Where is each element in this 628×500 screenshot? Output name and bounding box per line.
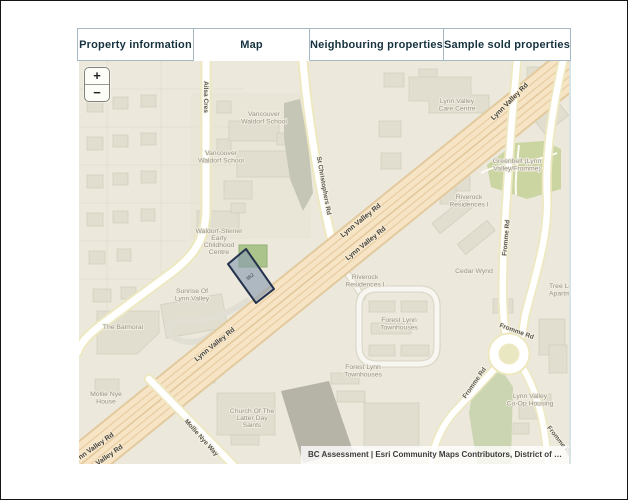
label-coop-housing: Lynn ValleyCo-Op Housing — [507, 393, 554, 408]
zoom-out-button[interactable]: − — [85, 84, 109, 101]
tab-neighbouring-properties[interactable]: Neighbouring properties — [310, 28, 444, 61]
tab-property-information[interactable]: Property information — [77, 28, 194, 61]
map-attribution: BC Assessment | Esri Community Maps Cont… — [301, 446, 569, 464]
tab-map[interactable]: Map — [194, 28, 310, 61]
map-canvas[interactable]: 362 Ailsa Cres VancouverWaldorf School V… — [79, 61, 571, 464]
label-care-centre: Lynn ValleyCare Centre — [438, 98, 475, 113]
tab-sample-sold-properties[interactable]: Sample sold properties — [444, 28, 571, 61]
zoom-in-button[interactable]: + — [85, 68, 109, 84]
label-forest-lynn-1: Forest LynnTownhouses — [380, 317, 418, 332]
label-sunrise: Sunrise OfLynn Valley — [175, 288, 210, 303]
label-ailsa-cres: Ailsa Cres — [202, 81, 209, 113]
label-forest-lynn-2: Forest LynnTownhouses — [344, 364, 382, 379]
assessment-page: Property information Map Neighbouring pr… — [0, 0, 628, 500]
label-tree-lodge: Tree LoApartme — [549, 283, 569, 298]
label-the-balmoral: The Balmoral — [103, 324, 144, 331]
tab-bar: Property information Map Neighbouring pr… — [77, 28, 571, 61]
zoom-control: + − — [84, 67, 110, 102]
label-cedar-wynd: Cedar Wynd — [455, 268, 493, 275]
map-graphics: 362 Ailsa Cres VancouverWaldorf School V… — [79, 61, 569, 464]
label-greenbelt: Greenbelt (LynnValley/Fromme) — [493, 158, 542, 173]
